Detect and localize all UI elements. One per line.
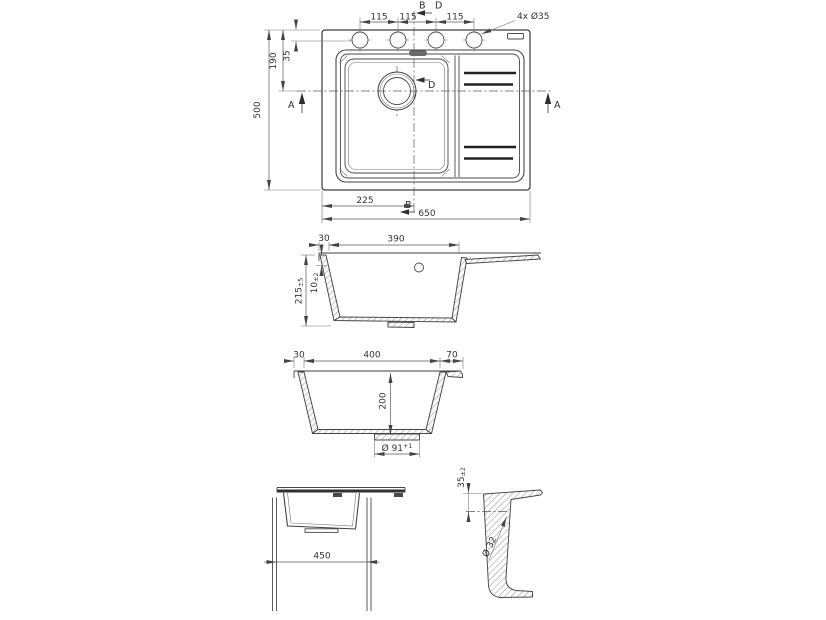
drawing-sheet: A A B D D B bbox=[0, 0, 826, 620]
dim-215-label: 215±5 bbox=[295, 278, 305, 304]
bowl-bottom bbox=[334, 317, 456, 322]
section-b-bottom-label: B bbox=[405, 200, 412, 211]
dim-30-long: 30 bbox=[311, 234, 338, 251]
section-a-left-label: A bbox=[288, 100, 295, 111]
bowl-left-wall bbox=[320, 255, 340, 321]
dim-115-1-label: 115 bbox=[370, 13, 387, 23]
dim-115-chain: 115 115 115 bbox=[360, 13, 474, 32]
mounting-clip-1 bbox=[333, 493, 342, 497]
section-a-left-marker: A bbox=[288, 93, 305, 114]
drainboard-slab bbox=[465, 255, 541, 264]
dim-30-long-label: 30 bbox=[318, 234, 330, 244]
bowl-right-wall bbox=[452, 258, 467, 323]
section-bd-top-marker: B D bbox=[416, 1, 442, 16]
section-a-right-marker: A bbox=[545, 93, 561, 114]
cross-drain-recess bbox=[375, 434, 420, 440]
dim-225-label: 225 bbox=[356, 196, 373, 206]
dim-115-3-label: 115 bbox=[446, 13, 463, 23]
technical-drawing: A A B D D B bbox=[0, 0, 826, 620]
cross-bottom bbox=[313, 430, 432, 434]
dim-500-label: 500 bbox=[253, 101, 263, 118]
dim-10-label: 10±2 bbox=[310, 273, 320, 294]
dim-190-label: 190 bbox=[269, 52, 279, 69]
cross-right-wall bbox=[426, 372, 446, 434]
dim-115-2-label: 115 bbox=[399, 13, 416, 23]
plan-view: A A B D D B bbox=[253, 1, 561, 224]
mounting-clip-2 bbox=[394, 493, 403, 497]
drain-stub bbox=[305, 529, 338, 533]
dim-70: 70 bbox=[440, 351, 463, 370]
corner-detail-view: Ø 32 35±2 bbox=[457, 467, 543, 597]
dim-400: 400 bbox=[304, 351, 440, 369]
section-a-right-label: A bbox=[554, 100, 561, 111]
section-b-top-label: B bbox=[419, 1, 426, 12]
dim-390-label: 390 bbox=[387, 235, 404, 245]
dim-35-detail-label: 35±2 bbox=[457, 467, 467, 488]
dim-450-label: 450 bbox=[313, 552, 330, 562]
bowl-front-outline bbox=[284, 493, 360, 529]
holes-note-label: 4x Ø35 bbox=[517, 11, 549, 22]
dim-650-label: 650 bbox=[418, 209, 435, 219]
overflow-hole bbox=[415, 263, 424, 272]
dim-35-detail: 35±2 bbox=[457, 467, 482, 522]
dim-30-cross-label: 30 bbox=[293, 351, 305, 361]
overflow-slot bbox=[409, 51, 427, 57]
dim-drain-label: Ø 91+1 bbox=[382, 443, 413, 454]
dim-450: 450 bbox=[264, 552, 380, 563]
section-b-bottom-marker: B bbox=[400, 200, 415, 215]
logo-plate bbox=[508, 34, 524, 40]
cross-left-wall bbox=[298, 372, 318, 434]
drain-recess bbox=[388, 322, 414, 328]
dim-200: 200 bbox=[379, 373, 391, 435]
dim-400-label: 400 bbox=[363, 351, 380, 361]
dim-70-label: 70 bbox=[446, 351, 458, 361]
dim-200-label: 200 bbox=[379, 392, 389, 409]
dim-225: 225 bbox=[322, 191, 414, 223]
section-b-view: 30 390 215±5 10±2 bbox=[295, 234, 542, 328]
bowl-front-inner-line bbox=[288, 493, 357, 526]
dim-30-cross: 30 bbox=[286, 351, 313, 369]
section-d-drain-label: D bbox=[428, 80, 435, 91]
dim-650: 650 bbox=[322, 191, 530, 223]
section-a-view: 30 400 70 200 Ø 91+1 bbox=[286, 351, 464, 458]
section-d-top-label: D bbox=[435, 1, 442, 12]
cross-right-rim bbox=[446, 371, 463, 378]
dim-35-label: 35 bbox=[283, 50, 293, 61]
front-view: 450 bbox=[264, 488, 405, 612]
dim-390: 390 bbox=[329, 235, 459, 255]
dim-drain-diameter: Ø 91+1 bbox=[375, 441, 420, 457]
